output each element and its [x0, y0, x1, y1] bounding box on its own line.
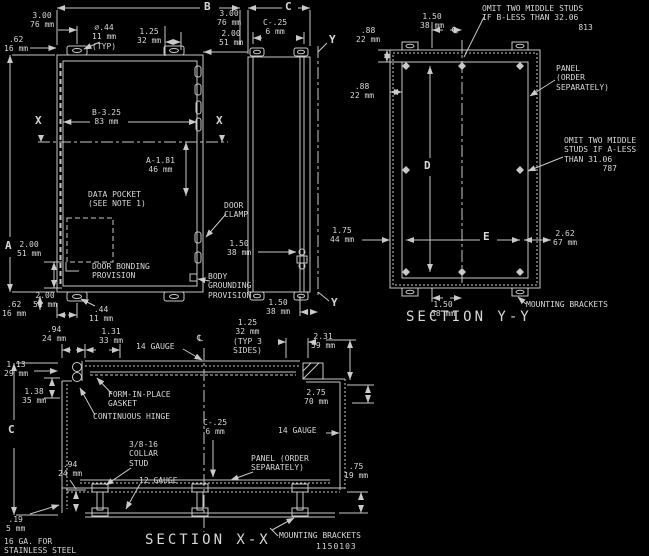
dim-c: C: [285, 1, 292, 12]
data-pocket-note: DATA POCKET (SEE NOTE 1): [88, 190, 146, 209]
dim-d: D: [424, 160, 431, 171]
dim-hinge-clearance: 1.38 35 mm: [22, 387, 46, 406]
dim-bottom-offset: 2.00 51 mm: [33, 291, 57, 310]
section-marker-y-top: Y: [329, 34, 336, 45]
section-marker-y-bottom: Y: [331, 297, 338, 308]
hinge-knuckle: [73, 363, 82, 372]
stainless-steel-note: 16 GA. FOR STAINLESS STEEL: [4, 537, 76, 556]
dim-top-center-offset: 1.25 32 mm: [137, 27, 161, 46]
dim-stud-offset-top: 1.50 38 mm: [420, 12, 444, 31]
section-xx-title: SECTION X-X: [145, 533, 271, 547]
dim-side-offset: 1.75 44 mm: [330, 226, 354, 245]
note-omit-studs-b: OMIT TWO MIDDLE STUDS IF B-LESS THAN 32.…: [482, 4, 593, 32]
dim-flange-return-top: .88 22 mm: [356, 26, 380, 45]
dim-wall-thickness: .19 5 mm: [6, 515, 25, 534]
dim-depth-minus: C-.25 6 mm: [263, 18, 287, 37]
dim-bottom-right-offset: 1.50 38 mm: [266, 298, 290, 317]
dim-mid-width: B-3.25 83 mm: [92, 108, 121, 127]
dim-top-right-offset2: 2.00 51 mm: [219, 29, 243, 48]
section-marker-x-right: X: [216, 115, 223, 126]
dim-hinge-offset: 2.00 51 mm: [17, 240, 41, 259]
section-yy-title: SECTION Y-Y: [406, 310, 532, 324]
dim-flange-typ: 1.25 32 mm (TYP 3 SIDES): [233, 318, 262, 356]
gauge-door-note: 14 GAUGE: [136, 342, 175, 351]
panel-studs: [402, 62, 524, 276]
dim-hole-diameter: ⌀.44 11 mm (TYP): [92, 23, 116, 51]
dim-bottom-hole: .44 11 mm: [89, 305, 113, 324]
dim-door-flange: 1.31 33 mm: [99, 327, 123, 346]
collar-studs: [92, 484, 308, 516]
data-pocket-outline: [67, 218, 113, 262]
centerline-symbol: ℄: [197, 335, 203, 344]
dim-door-depth: 2.31 59 mm: [311, 332, 335, 351]
continuous-hinge-note: CONTINUOUS HINGE: [93, 412, 170, 421]
dim-top-left-inset: .62 16 mm: [4, 35, 28, 54]
gasket-note: FORM-IN-PLACE GASKET: [108, 390, 171, 409]
dim-hinge-edge-offset: .94 24 mm: [42, 325, 66, 344]
dim-flange-return-side: .88 22 mm: [350, 82, 374, 101]
dim-a: A: [5, 240, 12, 251]
door-clamp-note: DOOR CLAMP: [224, 201, 248, 220]
dim-hinge-inset: 1.13 29 mm: [4, 360, 28, 379]
dim-bracket-height: .75 19 mm: [344, 462, 368, 481]
part-number: 1150103: [316, 542, 357, 551]
section-yy-geometry: [362, 17, 563, 304]
dim-panel-setback: 2.75 70 mm: [304, 388, 328, 407]
dim-mid-height: A-1.81 46 mm: [146, 156, 175, 175]
dim-clamp-spacing: 1.50 38 mm: [227, 239, 251, 258]
dim-corner-offset: 2.62 67 mm: [553, 229, 577, 248]
engineering-drawing: B 3.00 76 mm .62 16 mm ⌀.44 11 mm (TYP) …: [0, 0, 649, 556]
body-grounding-stud: [190, 274, 197, 281]
dim-panel-depth: C-.25 6 mm: [203, 418, 227, 437]
door-outline: [57, 55, 203, 292]
mounting-brackets-note-xx: MOUNTING BRACKETS: [279, 531, 361, 540]
dim-b: B: [204, 1, 211, 12]
dim-top-right-offset: 3.00 76 mm: [217, 9, 241, 28]
section-marker-x-left: X: [35, 115, 42, 126]
gauge-body-note: 14 GAUGE: [278, 426, 317, 435]
panel-note-xx: PANEL (ORDER SEPARATELY): [251, 454, 309, 473]
door-inner-outline: [63, 61, 197, 286]
panel-note: PANEL (ORDER SEPARATELY): [556, 64, 609, 92]
dim-c-xx: C: [8, 424, 15, 435]
mounting-brackets-note-yy: MOUNTING BRACKETS: [526, 300, 608, 309]
dim-stud-offset: .94 24 mm: [58, 460, 82, 479]
door-bonding-note: DOOR BONDING PROVISION: [92, 262, 150, 281]
dim-top-left-offset: 3.00 76 mm: [30, 11, 54, 30]
side-outline: [248, 57, 310, 292]
centerline-symbol: ℄: [452, 27, 458, 36]
note-omit-studs-a: OMIT TWO MIDDLE STUDS IF A-LESS THAN 31.…: [564, 136, 636, 174]
section-xx-geometry: [14, 338, 374, 536]
body-grounding-note: BODY GROUNDING PROVISION: [208, 272, 251, 300]
panel-outline: [402, 62, 528, 278]
dim-bottom-inset: .62 16 mm: [2, 300, 26, 319]
collar-stud-note: 3/8-16 COLLAR STUD: [129, 440, 158, 468]
gauge-bracket-note: 12 GAUGE: [139, 476, 178, 485]
dim-e: E: [483, 231, 490, 242]
door-bonding-stud: [66, 262, 79, 271]
